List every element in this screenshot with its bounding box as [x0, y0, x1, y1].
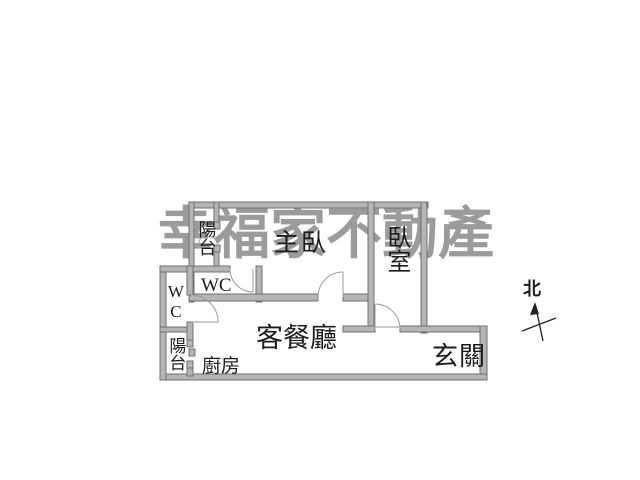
balcony-top-label: 陽台	[196, 220, 215, 256]
wall-entry-top-left	[343, 326, 375, 332]
balcony-bottom-label: 陽台	[166, 337, 184, 371]
bedroom-door-arc	[375, 304, 400, 329]
wall-strip-right-a	[187, 266, 193, 295]
master-wc-label: WC	[201, 276, 232, 297]
north-label: 北	[523, 280, 541, 299]
living-dining-label: 客餐廳	[256, 324, 337, 353]
master-door-arc	[318, 272, 343, 297]
wall-entry-top-right	[400, 326, 487, 332]
north-arrow	[522, 302, 556, 341]
wall-strip-right-b	[187, 322, 193, 340]
floorplan-canvas: 幸福家不動產	[0, 0, 640, 480]
wall-top	[189, 202, 428, 208]
master-bedroom-label: 主臥	[274, 230, 328, 257]
wall-strip-right-c	[187, 368, 193, 376]
wall-masterwc-top	[189, 266, 230, 272]
jamb-balcony-bottom-2	[189, 349, 195, 356]
jamb-balcony-bottom-1	[187, 340, 193, 347]
wall-bedroom-divider	[368, 202, 374, 332]
wall-balcony-top-right-a	[214, 202, 219, 222]
entry-label: 玄關	[432, 343, 486, 371]
masterwc-door-arc	[230, 269, 253, 292]
jamb-balcony-bottom-3	[187, 361, 193, 368]
kitchen-label: 廚房	[202, 357, 240, 378]
wall-right-upper	[421, 202, 427, 333]
side-wc-label: WC	[166, 282, 184, 322]
bedroom-label: 臥室	[382, 225, 408, 273]
north-arrow-head	[530, 302, 539, 315]
